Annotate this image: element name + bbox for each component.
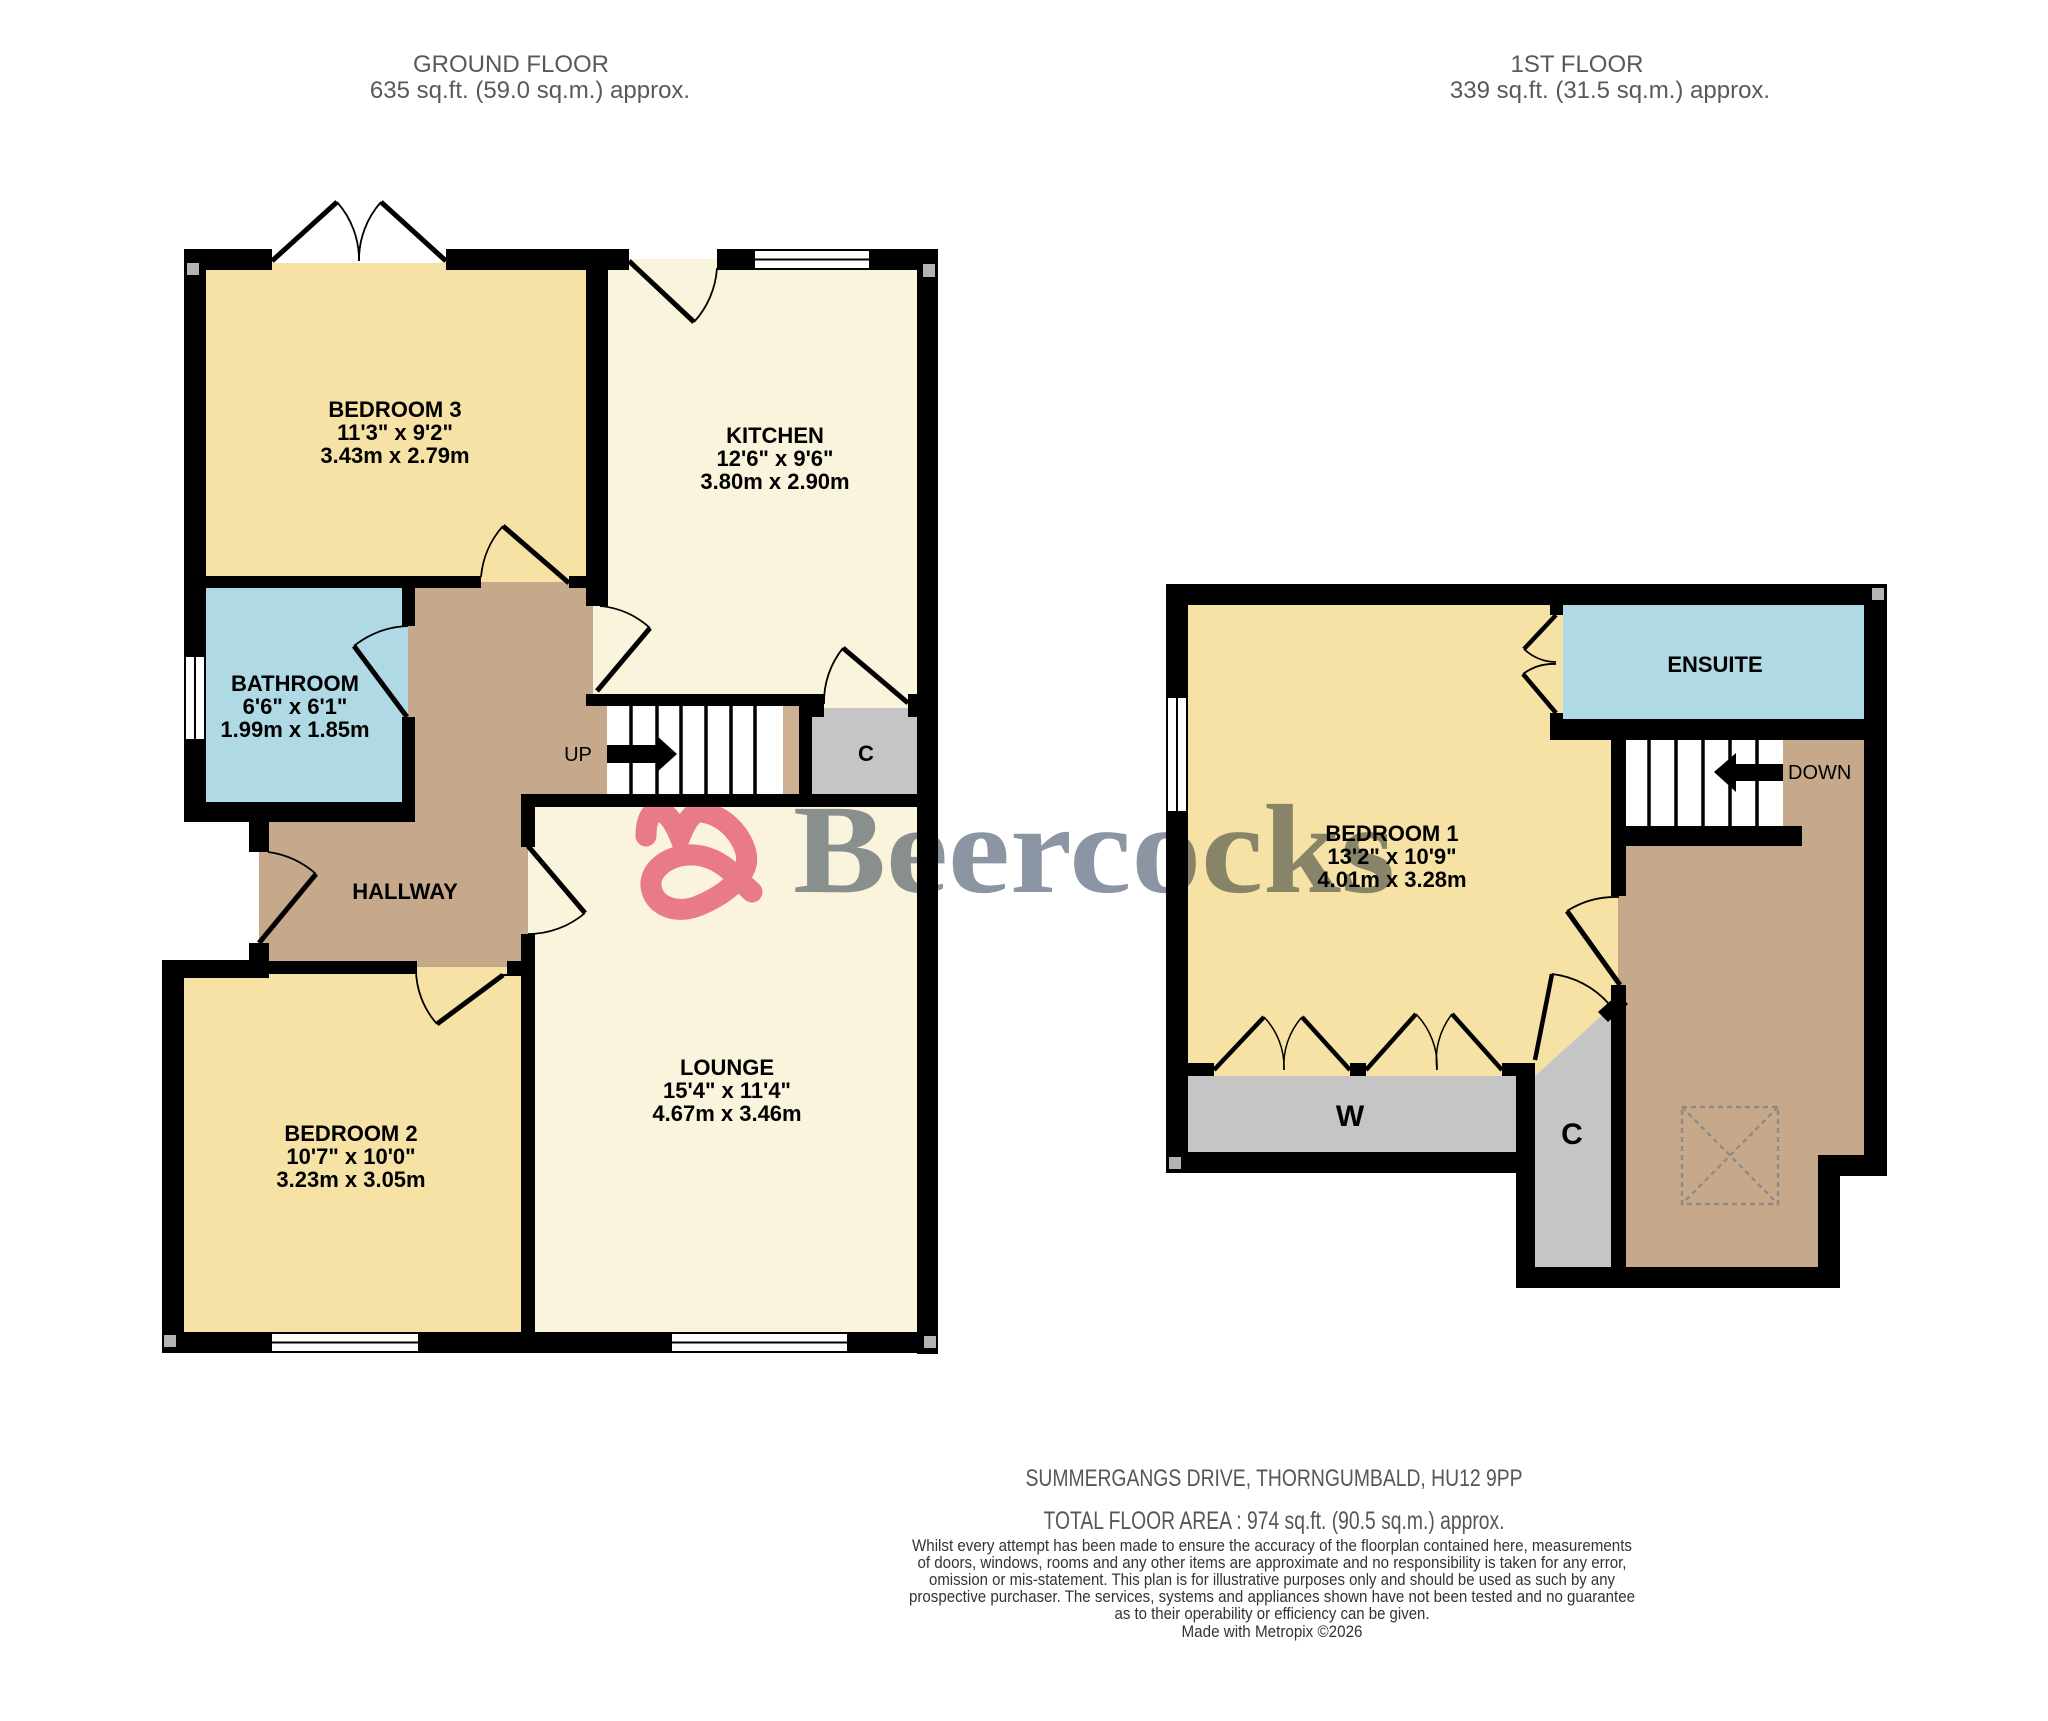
svg-text:6'6" x 6'1": 6'6" x 6'1" [243, 694, 348, 719]
svg-text:Whilst every attempt has been: Whilst every attempt has been made to en… [912, 1537, 1632, 1555]
svg-text:C: C [858, 741, 874, 766]
svg-text:prospective purchaser. The ser: prospective purchaser. The services, sys… [909, 1588, 1635, 1606]
svg-text:DOWN: DOWN [1788, 762, 1851, 784]
svg-text:339 sq.ft. (31.5 sq.m.) approx: 339 sq.ft. (31.5 sq.m.) approx. [1450, 77, 1770, 104]
svg-text:BEDROOM 2: BEDROOM 2 [284, 1121, 417, 1146]
svg-text:of doors, windows, rooms and a: of doors, windows, rooms and any other i… [918, 1554, 1627, 1572]
svg-text:Beercocks: Beercocks [793, 780, 1395, 920]
svg-text:as to their operability or eff: as to their operability or efficiency ca… [1115, 1605, 1430, 1623]
svg-text:BEDROOM 3: BEDROOM 3 [328, 397, 461, 422]
svg-text:1.99m x 1.85m: 1.99m x 1.85m [220, 717, 369, 742]
svg-text:3.80m x 2.90m: 3.80m x 2.90m [700, 469, 849, 494]
svg-text:W: W [1336, 1100, 1365, 1133]
svg-text:TOTAL FLOOR AREA : 974 sq.ft.: TOTAL FLOOR AREA : 974 sq.ft. (90.5 sq.m… [1044, 1507, 1505, 1535]
svg-text:1ST FLOOR: 1ST FLOOR [1511, 51, 1644, 78]
svg-text:3.23m x 3.05m: 3.23m x 3.05m [276, 1167, 425, 1192]
svg-text:KITCHEN: KITCHEN [726, 423, 824, 448]
svg-text:15'4" x 11'4": 15'4" x 11'4" [663, 1078, 791, 1103]
svg-text:10'7" x 10'0": 10'7" x 10'0" [286, 1144, 415, 1169]
svg-text:ENSUITE: ENSUITE [1667, 652, 1762, 677]
svg-text:3.43m x 2.79m: 3.43m x 2.79m [320, 443, 469, 468]
svg-text:omission or mis-statement. Thi: omission or mis-statement. This plan is … [929, 1571, 1616, 1589]
svg-text:C: C [1561, 1118, 1583, 1151]
svg-text:LOUNGE: LOUNGE [680, 1055, 774, 1080]
svg-text:11'3" x 9'2": 11'3" x 9'2" [337, 420, 453, 445]
svg-text:HALLWAY: HALLWAY [352, 879, 458, 904]
svg-text:UP: UP [564, 744, 592, 766]
svg-text:635 sq.ft. (59.0 sq.m.) approx: 635 sq.ft. (59.0 sq.m.) approx. [370, 77, 690, 104]
svg-text:Made with Metropix ©2026: Made with Metropix ©2026 [1182, 1623, 1363, 1641]
svg-text:BATHROOM: BATHROOM [231, 671, 359, 696]
svg-text:GROUND FLOOR: GROUND FLOOR [413, 51, 609, 78]
svg-text:SUMMERGANGS DRIVE, THORNGUMBAL: SUMMERGANGS DRIVE, THORNGUMBALD, HU12 9P… [1026, 1465, 1523, 1492]
svg-text:4.67m x 3.46m: 4.67m x 3.46m [652, 1101, 801, 1126]
svg-text:12'6" x 9'6": 12'6" x 9'6" [717, 446, 834, 471]
